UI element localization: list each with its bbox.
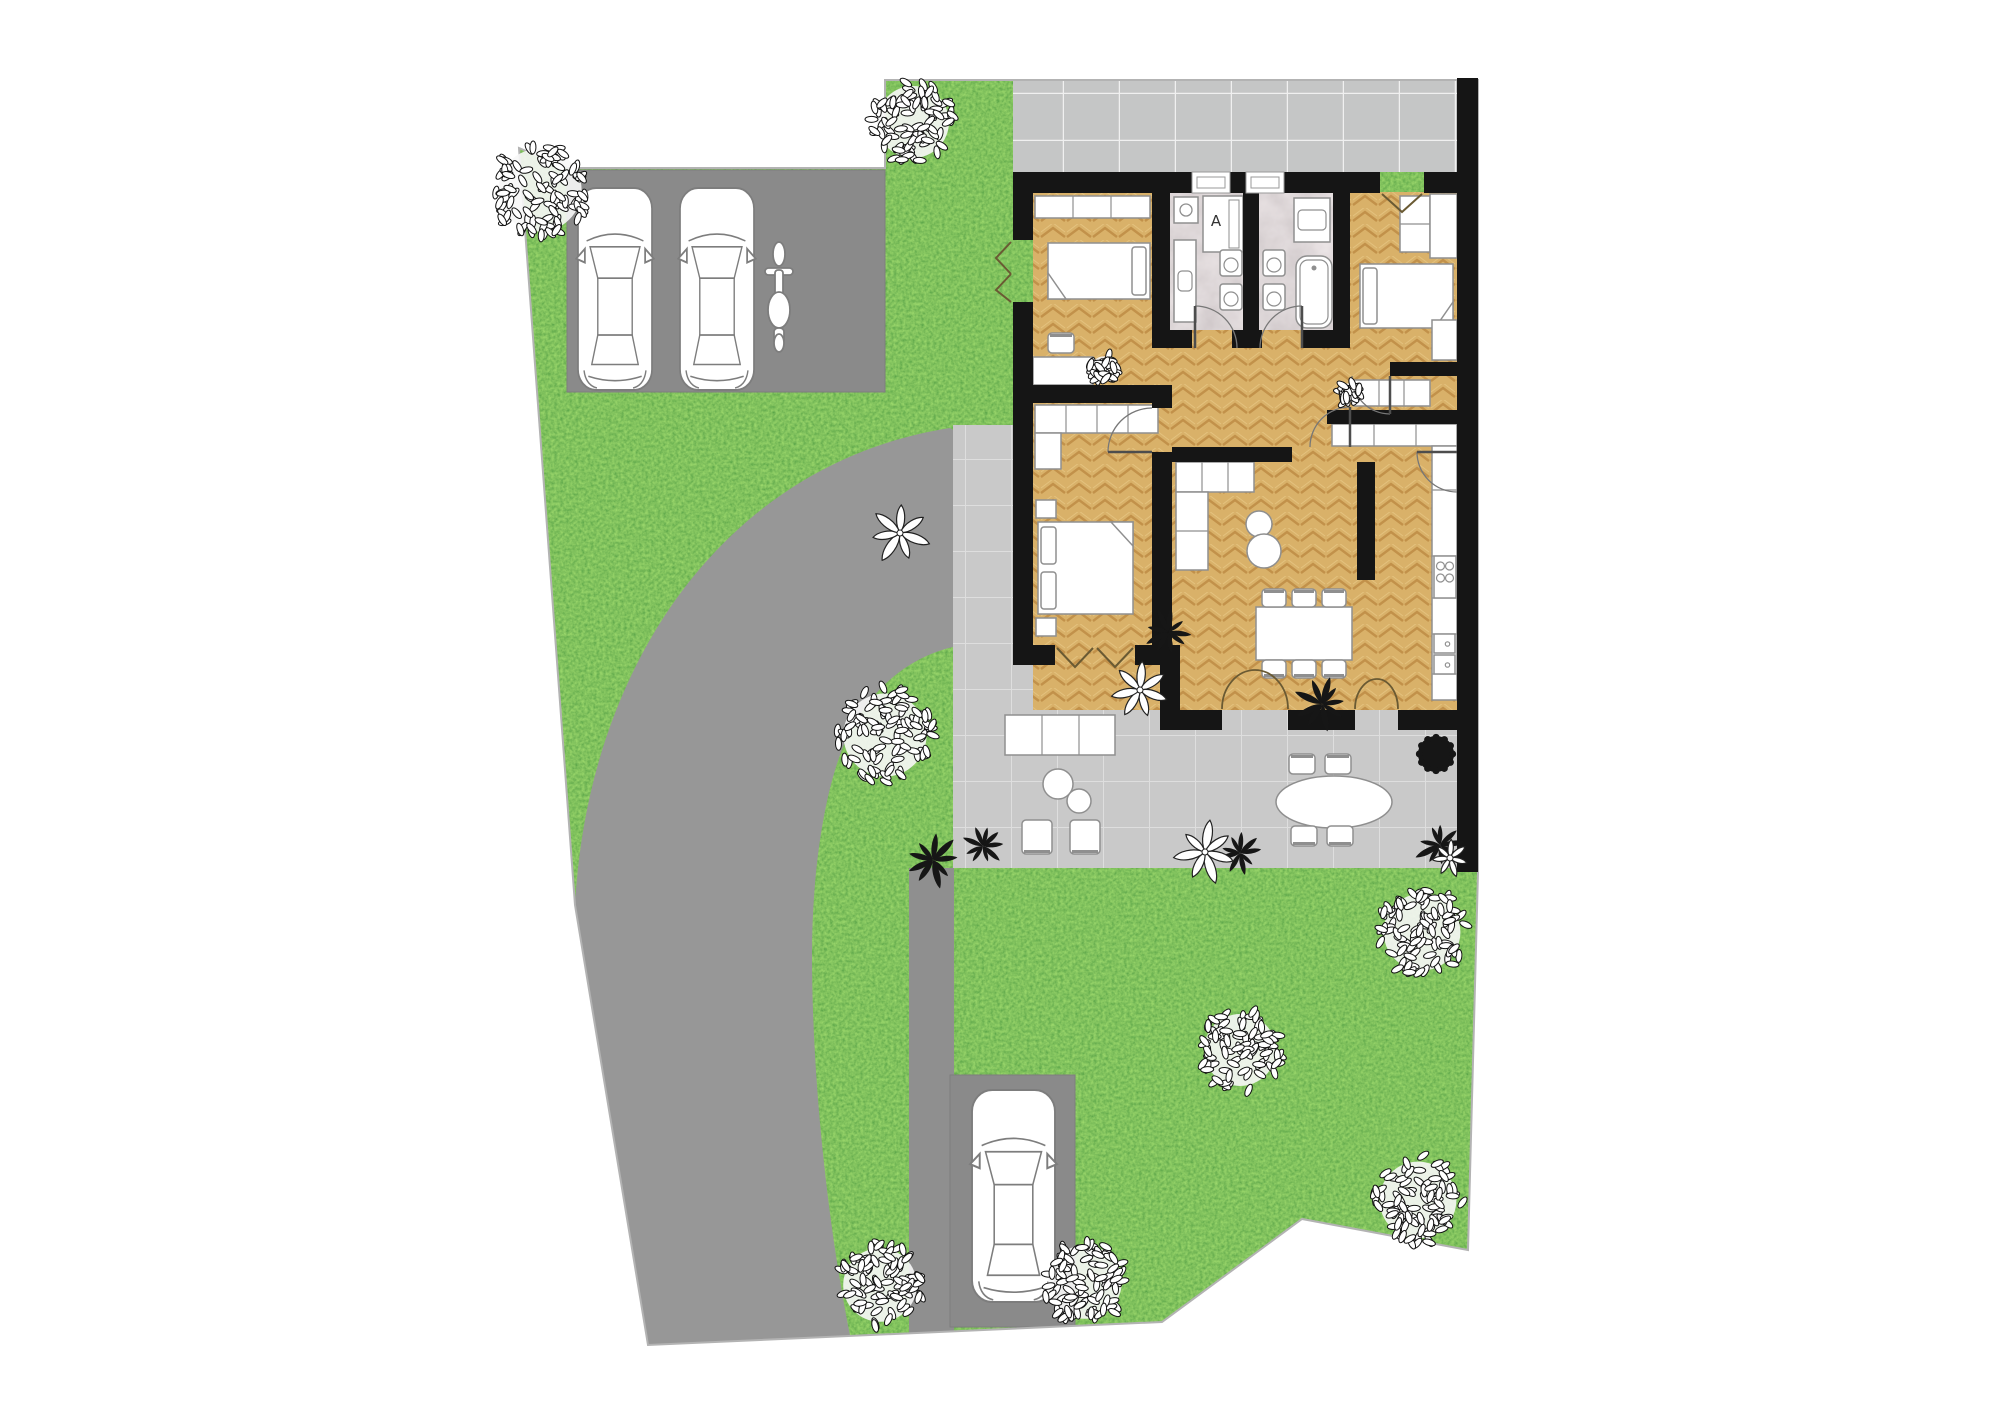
leaf <box>530 141 536 154</box>
armchair <box>1022 820 1052 854</box>
leaf <box>1413 1167 1426 1173</box>
pillow <box>1041 572 1056 609</box>
car-rear-window <box>987 1244 1039 1275</box>
leaf <box>1205 1020 1211 1033</box>
window <box>1192 172 1230 193</box>
desk <box>1033 357 1093 385</box>
left-wall <box>1013 193 1033 240</box>
bush-edge <box>1441 765 1448 772</box>
leaf <box>1201 1066 1214 1073</box>
dining-chair <box>1322 589 1346 607</box>
leaf <box>913 157 926 164</box>
single-bed <box>1048 243 1150 299</box>
corridor-wall <box>1390 362 1457 376</box>
single-bed <box>1360 264 1453 328</box>
patio-dining-table <box>1276 776 1392 828</box>
bush-edge <box>1447 742 1454 749</box>
leaf <box>835 737 841 750</box>
bush-body <box>1418 736 1454 772</box>
left-wall <box>1013 302 1033 665</box>
dining-table <box>1256 607 1352 660</box>
leaf <box>895 157 908 163</box>
pillow <box>1363 268 1377 324</box>
car-windshield <box>692 247 742 278</box>
nightstand <box>1036 500 1056 518</box>
leaf <box>879 707 892 713</box>
bush-edge <box>1441 736 1448 743</box>
dining-chair <box>1262 660 1286 678</box>
sideboard <box>1354 380 1430 406</box>
parked-car <box>970 1090 1057 1302</box>
wardrobe <box>1035 196 1150 218</box>
bush-edge <box>1416 750 1423 757</box>
washbasin <box>1294 198 1330 242</box>
parked-car <box>678 188 755 390</box>
outdoor-table <box>1067 789 1091 813</box>
kitchen-top-wall <box>1327 410 1457 424</box>
living-bottom-wall <box>1398 710 1457 730</box>
wardrobe <box>1035 433 1061 469</box>
dining-chair <box>1292 660 1316 678</box>
living-bottom-wall <box>1180 710 1222 730</box>
bath-divider-wall <box>1243 193 1259 348</box>
car-rear-window <box>694 335 740 364</box>
leaf <box>1064 1294 1077 1301</box>
wardrobe <box>1400 196 1430 252</box>
bush-edge <box>1447 759 1454 766</box>
dining-chair <box>1262 589 1286 607</box>
washbasin <box>1174 240 1196 322</box>
coffee-table <box>1247 534 1281 568</box>
car-roof <box>598 278 632 335</box>
scooter-seat <box>768 292 790 328</box>
dining-chair <box>1292 589 1316 607</box>
leaf <box>865 116 878 122</box>
wardrobe <box>1432 320 1457 360</box>
bush-edge <box>1418 742 1425 749</box>
sofa <box>1176 462 1254 492</box>
scooter-front-wheel <box>773 242 785 266</box>
wardrobe <box>1432 320 1457 360</box>
coffee-table <box>1246 511 1272 537</box>
car-rear-window <box>592 335 638 364</box>
floor-plan-drawing: A <box>0 0 2000 1413</box>
double-bed <box>1038 522 1133 614</box>
master-bottom-wall <box>1013 645 1055 665</box>
washing-machine <box>1174 197 1198 223</box>
flower-center <box>1202 849 1208 855</box>
coffee-table <box>1247 534 1281 568</box>
window <box>1246 172 1284 193</box>
flower-center <box>1447 855 1453 861</box>
patio-dining-table <box>1276 776 1392 828</box>
nightstand <box>1036 618 1056 636</box>
top-wall <box>1284 172 1380 193</box>
patio-chair <box>1291 826 1317 846</box>
bedroom-divider-wall <box>1033 385 1172 403</box>
bathtub-drain <box>1312 266 1317 271</box>
coffee-table <box>1246 511 1272 537</box>
pillow <box>1132 247 1146 295</box>
leaf <box>891 738 904 744</box>
kitchen-sink <box>1434 655 1455 674</box>
shower-symbol: A <box>1211 212 1222 230</box>
nightstand <box>1036 500 1056 518</box>
stove <box>1434 556 1456 598</box>
top-wall <box>1424 172 1457 193</box>
kitchen-sink <box>1434 634 1455 653</box>
desk <box>1033 357 1093 385</box>
leaf <box>1088 1307 1095 1320</box>
leaf <box>1075 1244 1088 1251</box>
shower <box>1203 196 1243 252</box>
patio-chair <box>1289 754 1315 774</box>
car-windshield <box>986 1152 1042 1185</box>
leaf <box>868 1241 874 1254</box>
washbasin <box>1174 240 1196 322</box>
sofa-chaise <box>1176 492 1208 570</box>
car-roof <box>994 1185 1033 1245</box>
bath1-left-wall <box>1152 193 1170 348</box>
toilet <box>1263 250 1285 276</box>
bush-edge <box>1424 736 1431 743</box>
armchair <box>1022 820 1052 854</box>
car-roof <box>700 278 734 335</box>
leaf <box>1447 900 1453 913</box>
washbasin <box>1294 198 1330 242</box>
bath-bottom-wall <box>1152 330 1192 348</box>
wardrobe <box>1035 433 1061 469</box>
bidet <box>1263 284 1285 310</box>
flower-center <box>1137 687 1143 693</box>
master-right-wall <box>1152 403 1172 408</box>
washing-machine <box>1174 197 1198 223</box>
leaf <box>1212 1030 1219 1043</box>
top-wall <box>1230 172 1246 193</box>
leaf <box>1446 1193 1459 1200</box>
shower: A <box>1203 196 1243 252</box>
leaf <box>1049 1266 1055 1279</box>
leaf <box>1214 1013 1227 1020</box>
closet <box>1430 194 1457 258</box>
bath2-right-wall <box>1333 193 1350 348</box>
sofa-wall <box>1172 447 1292 462</box>
desk-chair <box>1048 333 1074 353</box>
bush-edge <box>1424 765 1431 772</box>
dining-chair <box>1322 660 1346 678</box>
kitchen-divider-wall <box>1357 462 1375 580</box>
toilet <box>1220 250 1242 276</box>
bush-edge <box>1432 734 1439 741</box>
bush-edge <box>1449 750 1456 757</box>
leaf <box>1403 969 1416 975</box>
armchair <box>1070 820 1100 854</box>
right-wall <box>1457 78 1478 872</box>
path-to-rear-parking <box>909 868 954 1338</box>
car-windshield <box>590 247 640 278</box>
bath-bottom-wall <box>1302 330 1350 348</box>
leaf <box>538 229 545 242</box>
stove <box>1434 556 1456 598</box>
outdoor-sofa <box>1005 715 1115 755</box>
top-wall <box>1013 172 1192 193</box>
wardrobe <box>1035 196 1150 218</box>
bidet <box>1220 284 1242 310</box>
parked-car <box>576 188 653 390</box>
scooter-rear-wheel <box>774 334 784 352</box>
patio-chair <box>1327 826 1353 846</box>
pillow <box>1041 527 1056 564</box>
sideboard <box>1354 380 1430 406</box>
outdoor-table <box>1067 789 1091 813</box>
outdoor-sofa <box>1005 715 1115 755</box>
step-wall <box>1160 645 1180 730</box>
dining-table <box>1256 607 1352 660</box>
nightstand <box>1036 618 1056 636</box>
closet <box>1430 194 1457 258</box>
armchair <box>1070 820 1100 854</box>
site-plan: A <box>0 0 2000 1413</box>
front-walkway <box>1013 78 1457 172</box>
bush-edge <box>1418 759 1425 766</box>
bush-edge <box>1432 767 1439 774</box>
patio-chair <box>1325 754 1351 774</box>
flower-center <box>897 530 903 536</box>
sofa <box>1176 462 1254 492</box>
